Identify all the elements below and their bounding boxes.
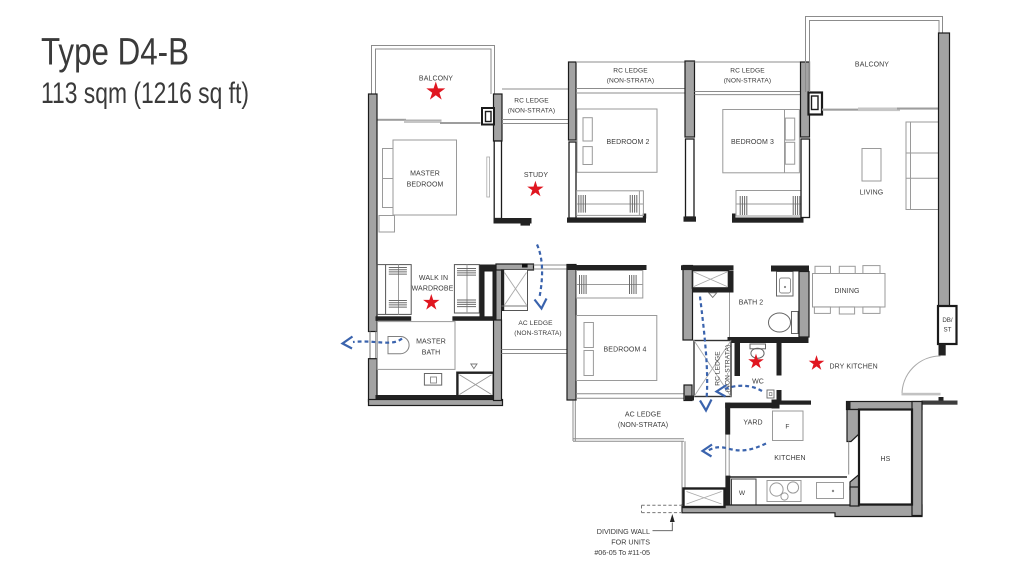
svg-text:W: W bbox=[739, 490, 746, 497]
svg-text:AC LEDGE: AC LEDGE bbox=[518, 320, 553, 327]
svg-text:KITCHEN: KITCHEN bbox=[774, 455, 805, 462]
svg-text:YARD: YARD bbox=[743, 420, 762, 427]
svg-text:ST: ST bbox=[944, 327, 952, 334]
svg-text:BEDROOM 3: BEDROOM 3 bbox=[731, 139, 774, 146]
svg-text:(NON-STRATA): (NON-STRATA) bbox=[724, 78, 771, 85]
svg-text:(NON-STRATA): (NON-STRATA) bbox=[508, 108, 555, 115]
svg-text:(NON-STRATA): (NON-STRATA) bbox=[618, 422, 668, 429]
svg-text:(NON-STRATA): (NON-STRATA) bbox=[514, 330, 561, 337]
svg-text:BEDROOM 2: BEDROOM 2 bbox=[607, 139, 650, 146]
svg-text:Type D4-B: Type D4-B bbox=[41, 32, 189, 74]
svg-text:MASTER: MASTER bbox=[410, 171, 440, 178]
svg-text:AC LEDGE: AC LEDGE bbox=[625, 412, 661, 419]
svg-text:RC LEDGE: RC LEDGE bbox=[730, 68, 765, 75]
svg-text:F: F bbox=[785, 424, 789, 431]
svg-text:BEDROOM 4: BEDROOM 4 bbox=[604, 347, 647, 354]
svg-text:BEDROOM: BEDROOM bbox=[407, 182, 444, 189]
svg-text:(NON-STRATA): (NON-STRATA) bbox=[607, 78, 654, 85]
svg-text:LIVING: LIVING bbox=[860, 190, 884, 197]
svg-text:#06-05 To #11-05: #06-05 To #11-05 bbox=[594, 548, 650, 557]
svg-text:WARDROBE: WARDROBE bbox=[412, 286, 454, 293]
svg-text:FOR UNITS: FOR UNITS bbox=[611, 538, 650, 547]
svg-text:RC LEDGE: RC LEDGE bbox=[715, 351, 722, 386]
svg-text:BATH 2: BATH 2 bbox=[739, 300, 764, 307]
svg-text:WC: WC bbox=[752, 379, 764, 386]
svg-text:RC LEDGE: RC LEDGE bbox=[613, 68, 648, 75]
svg-text:WALK IN: WALK IN bbox=[419, 275, 448, 282]
svg-text:DINING: DINING bbox=[834, 288, 859, 295]
svg-text:BATH: BATH bbox=[422, 350, 441, 357]
svg-text:RC LEDGE: RC LEDGE bbox=[514, 98, 549, 105]
svg-text:DIVIDING WALL: DIVIDING WALL bbox=[597, 527, 650, 536]
svg-text:DRY KITCHEN: DRY KITCHEN bbox=[830, 363, 878, 370]
svg-text:HS: HS bbox=[881, 456, 891, 463]
svg-text:MASTER: MASTER bbox=[416, 339, 446, 346]
svg-text:BALCONY: BALCONY bbox=[419, 76, 453, 83]
svg-text:BALCONY: BALCONY bbox=[855, 62, 889, 69]
svg-text:DB/: DB/ bbox=[942, 317, 953, 324]
svg-text:113 sqm (1216 sq ft): 113 sqm (1216 sq ft) bbox=[41, 77, 249, 110]
svg-text:STUDY: STUDY bbox=[524, 172, 548, 179]
